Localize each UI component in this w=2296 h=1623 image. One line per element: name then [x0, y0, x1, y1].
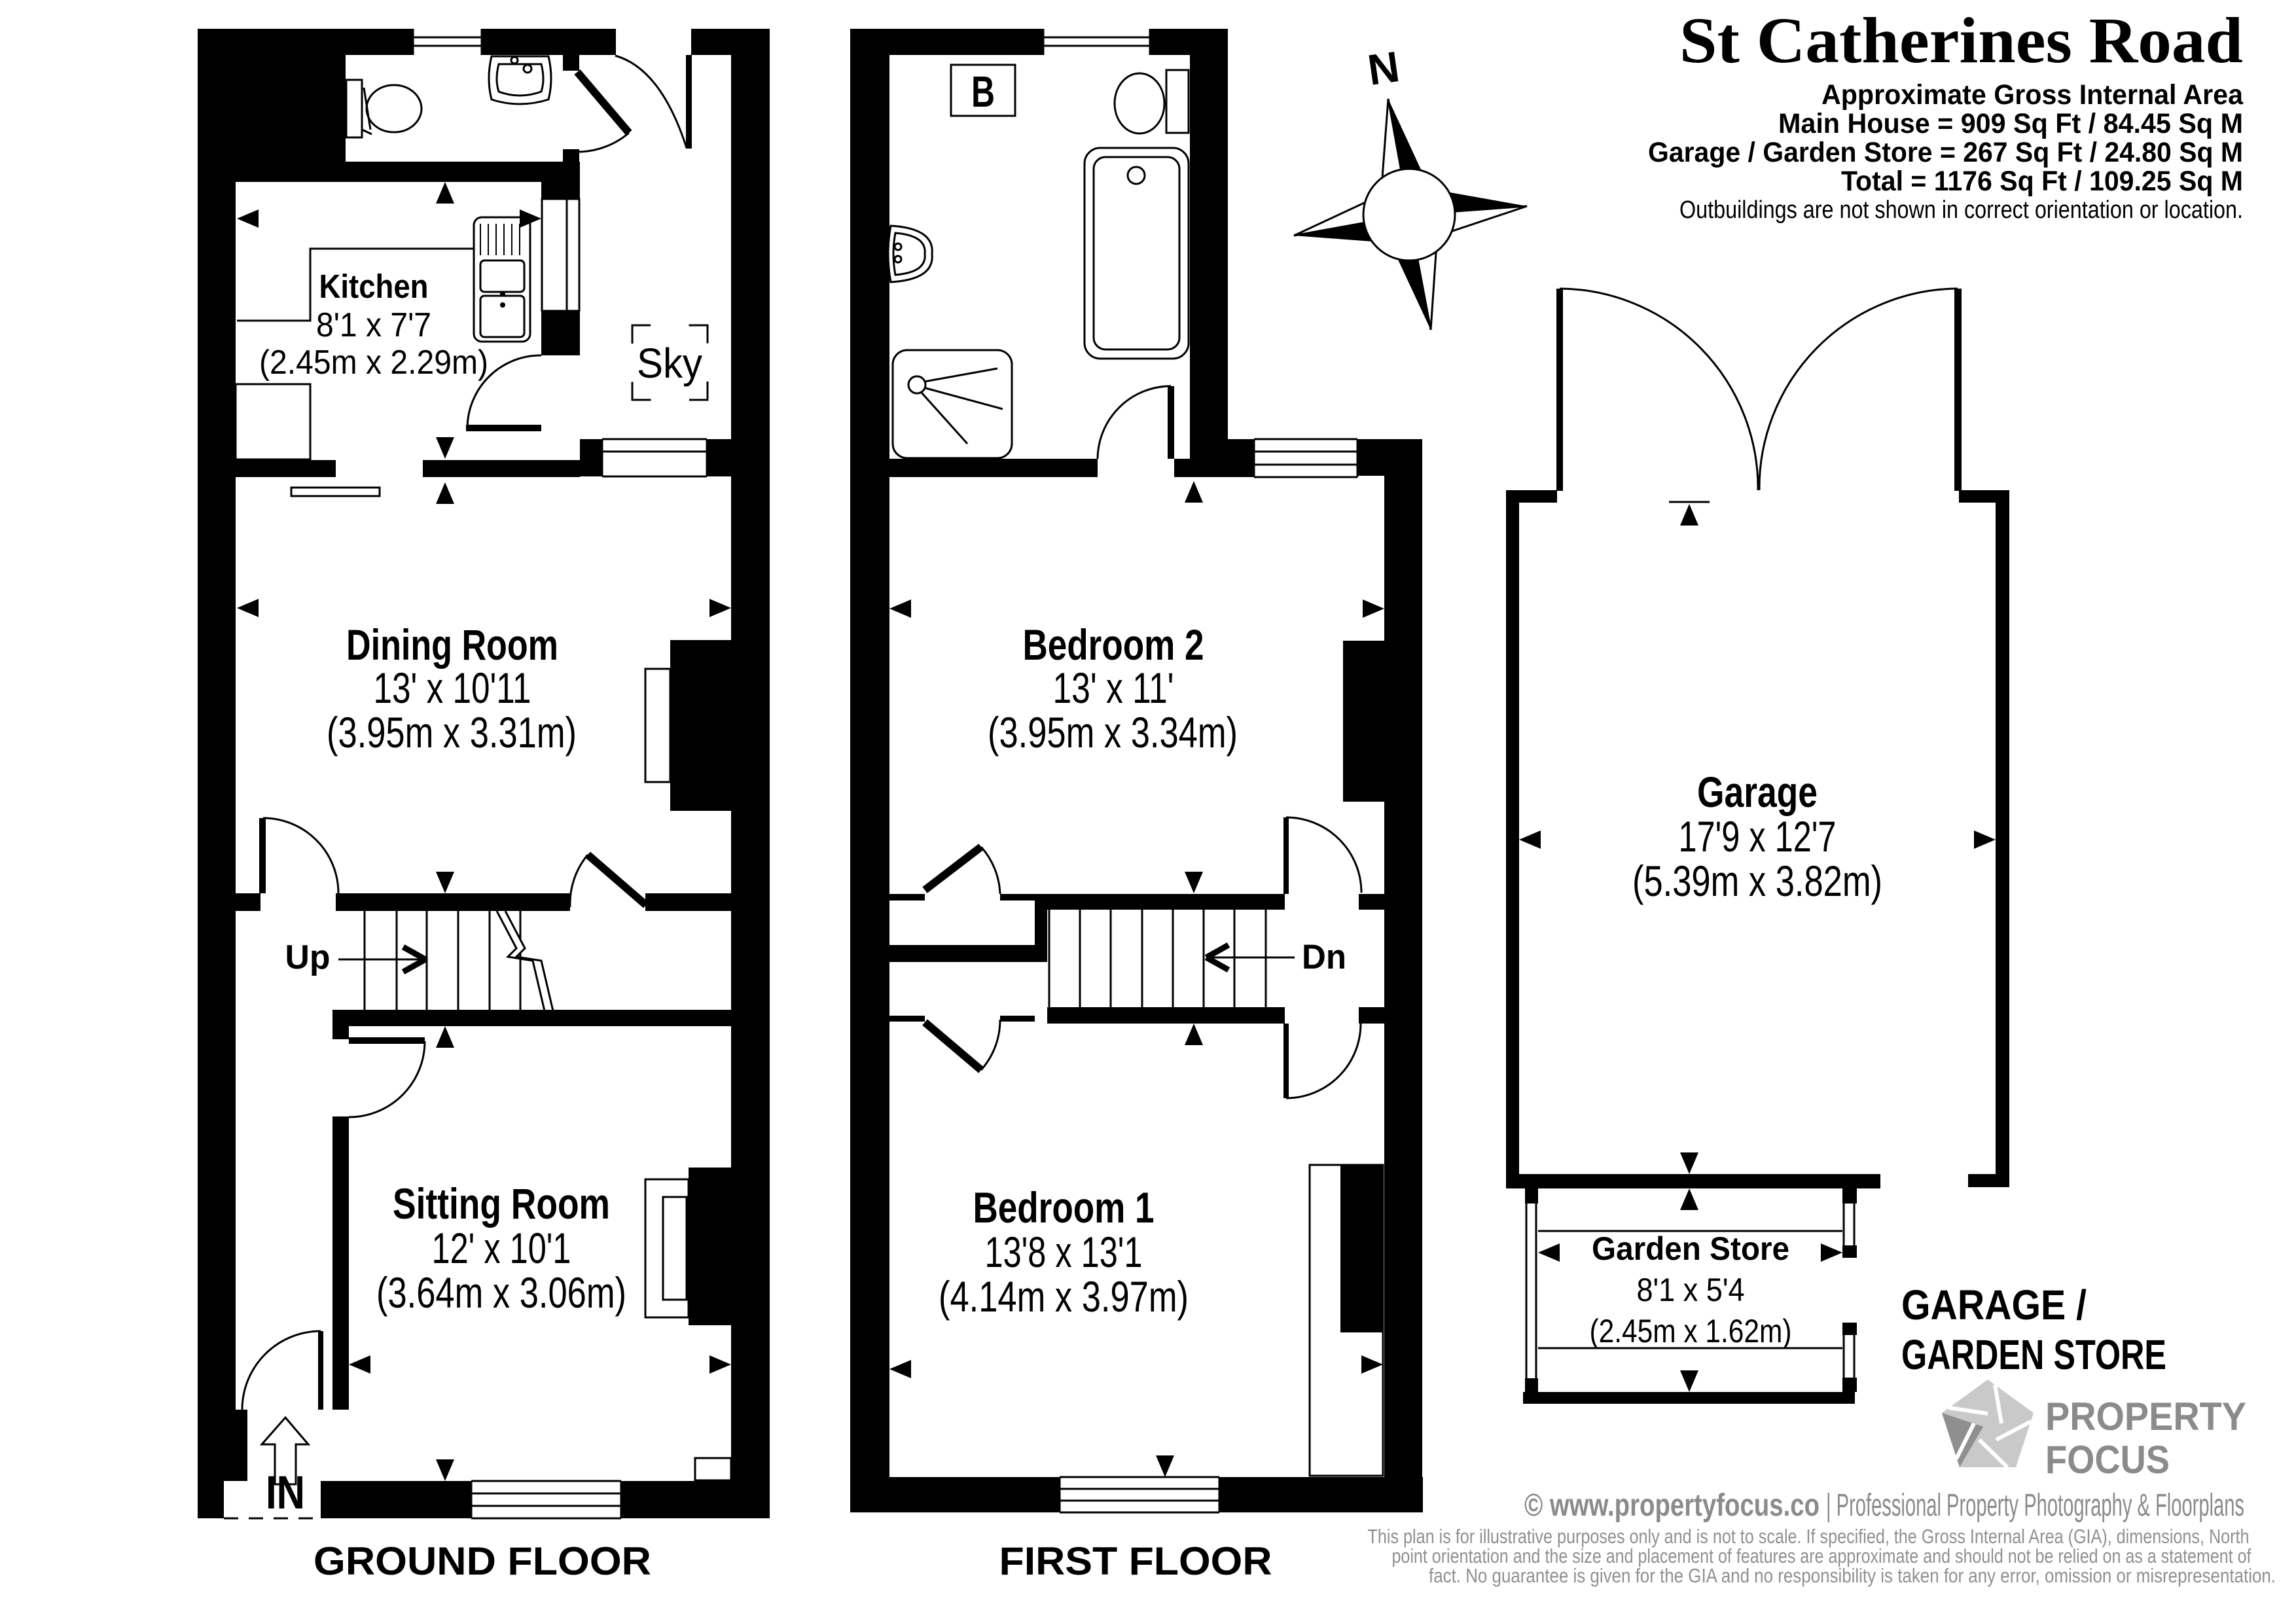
svg-text:St Catherines Road: St Catherines Road: [1679, 4, 2243, 77]
svg-text:17'9 x 12'7: 17'9 x 12'7: [1679, 812, 1837, 861]
svg-text:N: N: [1365, 42, 1403, 94]
svg-text:B: B: [971, 67, 995, 116]
svg-text:Total = 1176 Sq Ft / 109.25 Sq: Total = 1176 Sq Ft / 109.25 Sq M: [1841, 166, 2243, 197]
svg-text:Garage: Garage: [1697, 768, 1818, 816]
svg-text:Garage / Garden Store = 267 Sq: Garage / Garden Store = 267 Sq Ft / 24.8…: [1648, 137, 2243, 168]
svg-text:Sky: Sky: [637, 340, 702, 387]
svg-text:13'8 x 13'1: 13'8 x 13'1: [985, 1228, 1143, 1276]
svg-text:13' x 11': 13' x 11': [1053, 664, 1174, 712]
svg-text:(2.45m x 2.29m): (2.45m x 2.29m): [259, 344, 488, 382]
svg-text:IN: IN: [266, 1467, 305, 1519]
svg-text:(2.45m x 1.62m): (2.45m x 1.62m): [1590, 1313, 1792, 1349]
svg-text:Bedroom 1: Bedroom 1: [973, 1183, 1155, 1232]
svg-text:GROUND FLOOR: GROUND FLOOR: [314, 1539, 651, 1583]
svg-text:| Professional Property Photog: | Professional Property Photography & Fl…: [1826, 1488, 2244, 1523]
svg-text:GARAGE /: GARAGE /: [1901, 1281, 2087, 1329]
svg-text:PROPERTY: PROPERTY: [2045, 1395, 2246, 1438]
svg-text:Main House = 909 Sq Ft / 84.45: Main House = 909 Sq Ft / 84.45 Sq M: [1778, 108, 2243, 139]
svg-text:(3.64m x 3.06m): (3.64m x 3.06m): [376, 1268, 626, 1317]
svg-text:Outbuildings are not shown in: Outbuildings are not shown in correct or…: [1679, 196, 2243, 224]
svg-text:Bedroom 2: Bedroom 2: [1023, 620, 1204, 669]
svg-text:FIRST FLOOR: FIRST FLOOR: [999, 1539, 1272, 1583]
svg-text:Up: Up: [285, 938, 331, 976]
svg-text:© www.propertyfocus.co: © www.propertyfocus.co: [1524, 1488, 1820, 1523]
svg-text:Approximate Gross Internal Are: Approximate Gross Internal Area: [1821, 79, 2244, 111]
svg-text:(3.95m x 3.34m): (3.95m x 3.34m): [988, 708, 1238, 757]
svg-text:(5.39m x 3.82m): (5.39m x 3.82m): [1632, 857, 1882, 905]
svg-text:13' x 10'11: 13' x 10'11: [374, 664, 531, 712]
svg-text:(3.95m x 3.31m): (3.95m x 3.31m): [327, 708, 577, 757]
svg-text:Kitchen: Kitchen: [319, 268, 429, 305]
svg-text:fact. No guarantee is given fo: fact. No guarantee is given for the GIA …: [1429, 1564, 2276, 1587]
svg-text:Dn: Dn: [1302, 938, 1346, 976]
svg-text:GARDEN STORE: GARDEN STORE: [1901, 1331, 2166, 1378]
svg-text:Garden Store: Garden Store: [1592, 1230, 1789, 1267]
svg-text:8'1 x 5'4: 8'1 x 5'4: [1637, 1272, 1745, 1308]
svg-text:Dining Room: Dining Room: [346, 620, 558, 669]
svg-text:(4.14m x 3.97m): (4.14m x 3.97m): [939, 1272, 1189, 1321]
svg-text:FOCUS: FOCUS: [2045, 1438, 2170, 1482]
svg-text:12' x 10'1: 12' x 10'1: [432, 1224, 571, 1272]
svg-text:Sitting Room: Sitting Room: [393, 1179, 610, 1228]
svg-text:8'1 x 7'7: 8'1 x 7'7: [316, 306, 431, 344]
